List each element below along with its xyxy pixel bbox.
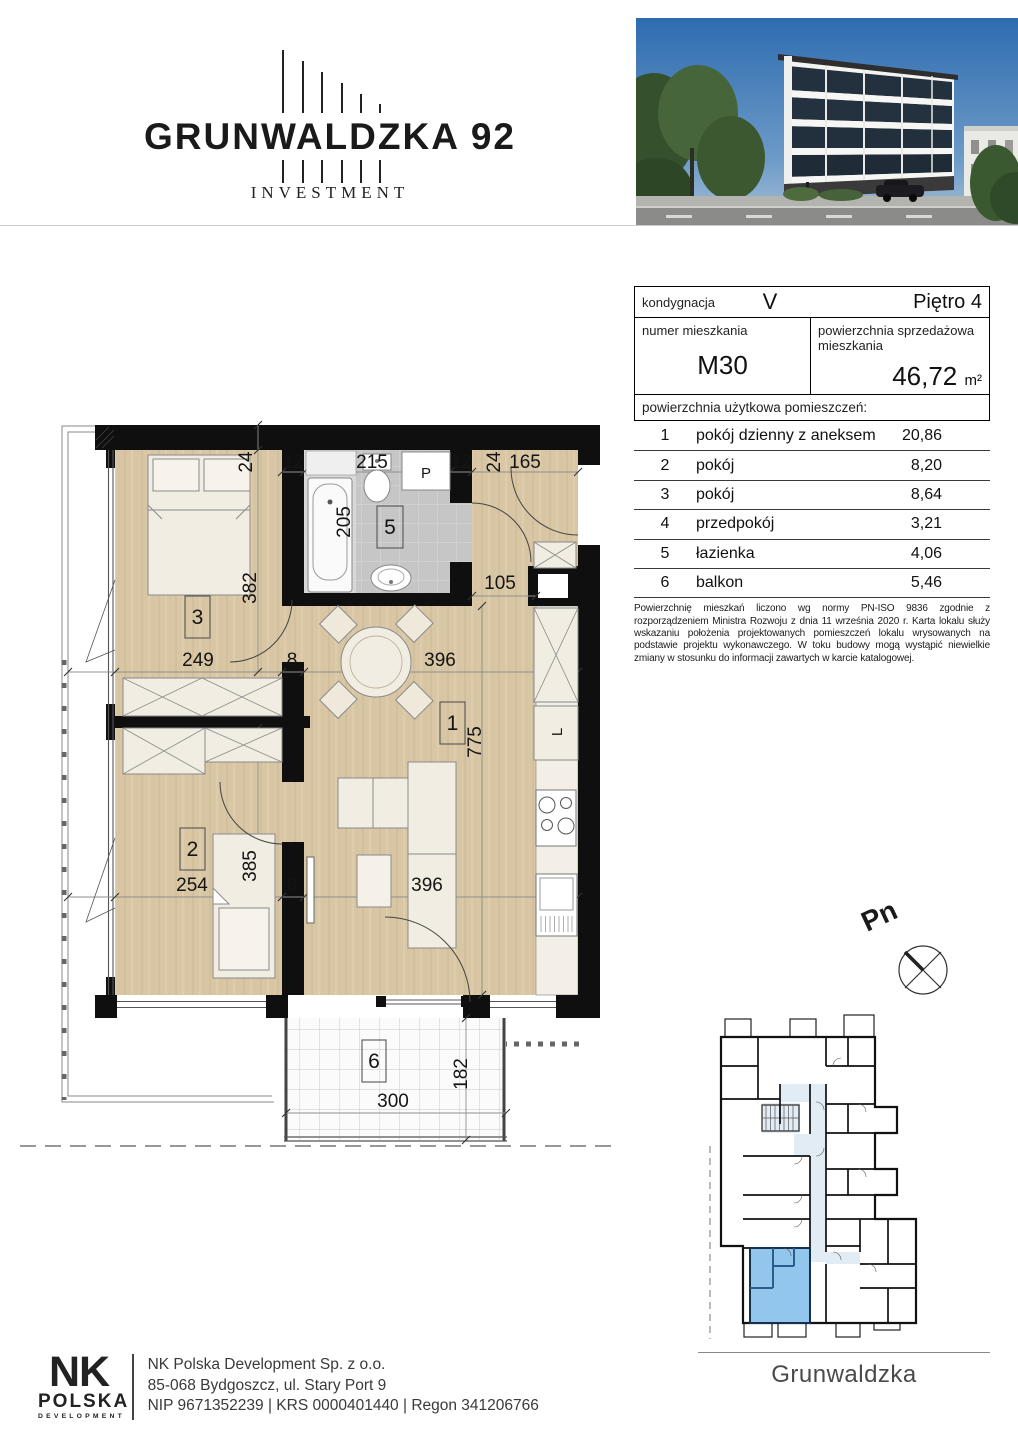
- shaft: [538, 574, 568, 598]
- logo-bar: [341, 83, 343, 113]
- entry-cabinet: [534, 542, 576, 568]
- floor-plan: 3 5 1 2 6 12 215 12 165 24 24 205 382 10…: [20, 410, 620, 1170]
- brand-wordmark: GRUNWALDZKA 92: [130, 116, 530, 158]
- dim-254: 254: [176, 875, 208, 896]
- footer-address: 85-068 Bydgoszcz, ul. Stary Port 9: [148, 1376, 539, 1397]
- nk-logo: NK POLSKA DEVELOPMENT: [38, 1352, 120, 1422]
- dim-24-right: 24: [484, 451, 505, 473]
- page: GRUNWALDZKA 92 INVESTMENT: [0, 0, 1018, 1440]
- logo-bar: [302, 61, 304, 113]
- kondygnacja-value: V: [730, 289, 810, 315]
- logo-bar: [379, 104, 381, 113]
- room-area: 4,06: [894, 545, 990, 563]
- room-label-1: 1: [447, 712, 459, 735]
- info-row-usable-header: powierzchnia użytkowa pomieszczeń:: [635, 395, 989, 420]
- dim-205: 205: [334, 506, 355, 538]
- footer-text: NK Polska Development Sp. z o.o. 85-068 …: [148, 1352, 539, 1422]
- area-unit: m²: [965, 372, 983, 389]
- room-name: pokój: [696, 457, 894, 475]
- coffee-table: [357, 855, 391, 907]
- dim-12-right: 12: [450, 452, 471, 473]
- room-number: 2: [634, 457, 696, 475]
- uzytkowa-header: powierzchnia użytkowa pomieszczeń:: [635, 400, 867, 415]
- shelf: [306, 451, 356, 475]
- dim-775: 775: [465, 726, 486, 758]
- logo-bar: [360, 94, 362, 113]
- nk-logo-polska: POLSKA: [38, 1392, 120, 1412]
- brand-logo: GRUNWALDZKA 92 INVESTMENT: [130, 40, 530, 215]
- disclaimer-text: Powierzchnię mieszkań liczono wg normy P…: [634, 603, 990, 664]
- door-sill-end: [376, 996, 386, 1007]
- street-name: Grunwaldzka: [698, 1361, 990, 1389]
- logo-bar: [302, 160, 304, 183]
- room-row: 6 balkon 5,46: [634, 569, 990, 598]
- building-render-image: [636, 18, 1018, 225]
- apartment-area: 46,72 m²: [818, 361, 982, 392]
- room-row: 1 pokój dzienny z aneksem 20,86: [634, 422, 990, 451]
- apartment-area-cell: powierzchnia sprzedażowa mieszkania 46,7…: [811, 318, 989, 394]
- powierzchnia-label: powierzchnia sprzedażowa mieszkania: [818, 323, 982, 353]
- highlighted-unit: [750, 1248, 810, 1323]
- logo-bar: [282, 50, 284, 113]
- apartment-number-cell: numer mieszkania M30: [635, 318, 811, 394]
- pietro-value: Piętro 4: [913, 291, 989, 314]
- room-list: 1 pokój dzienny z aneksem 20,86 2 pokój …: [634, 422, 990, 598]
- brand-subtitle: INVESTMENT: [130, 183, 530, 203]
- stove: [536, 790, 576, 846]
- tall-wardrobe: [534, 608, 578, 702]
- room-area: 20,86: [894, 427, 990, 445]
- room-row: 3 pokój 8,64: [634, 481, 990, 510]
- window-tilt-mark: [86, 838, 115, 922]
- room-area: 8,64: [894, 486, 990, 504]
- logo-bar: [321, 160, 323, 183]
- dim-8-top: 8: [287, 650, 298, 671]
- wardrobe: [123, 678, 282, 716]
- main-building: [778, 54, 958, 198]
- developer-footer: NK POLSKA DEVELOPMENT NK Polska Developm…: [38, 1352, 539, 1422]
- dim-300: 300: [377, 1091, 409, 1112]
- info-row-floor: kondygnacja V Piętro 4: [635, 287, 989, 318]
- footer-company: NK Polska Development Sp. z o.o.: [148, 1355, 539, 1376]
- room-label-6: 6: [368, 1050, 380, 1073]
- balcony: [284, 1018, 507, 1141]
- dim-8-bottom: 8: [287, 875, 298, 896]
- room-area: 5,46: [894, 574, 990, 592]
- fridge-label: L: [549, 728, 566, 736]
- footer-divider: [132, 1354, 134, 1420]
- logo-bar: [341, 160, 343, 183]
- window-tilt-mark: [86, 580, 115, 662]
- dim-385: 385: [240, 850, 261, 882]
- dim-396-bottom: 396: [411, 875, 443, 896]
- numer-label: numer mieszkania: [642, 323, 803, 338]
- room-label-5: 5: [384, 516, 396, 539]
- washer-label: P: [421, 465, 431, 482]
- room-row: 4 przedpokój 3,21: [634, 510, 990, 539]
- room-row: 2 pokój 8,20: [634, 451, 990, 480]
- room-name: pokój: [696, 486, 894, 504]
- logo-bar: [360, 160, 362, 183]
- room-area: 3,21: [894, 515, 990, 533]
- room-name: łazienka: [696, 545, 894, 563]
- room-label-3: 3: [192, 606, 204, 629]
- room-number: 6: [634, 574, 696, 592]
- room-row: 5 łazienka 4,06: [634, 540, 990, 569]
- dim-396-top: 396: [424, 650, 456, 671]
- street-line: [698, 1352, 990, 1353]
- street-label-block: Grunwaldzka: [698, 1352, 990, 1389]
- dim-182: 182: [451, 1058, 472, 1090]
- north-arrow: Pn: [845, 882, 1015, 1012]
- area-number: 46,72: [892, 361, 957, 391]
- room-label-2: 2: [187, 838, 199, 861]
- floor-key-plan: [698, 1006, 1016, 1339]
- tv: [307, 857, 314, 923]
- header-divider: [0, 225, 1018, 226]
- logo-bar: [282, 160, 284, 183]
- dim-165: 165: [509, 452, 541, 473]
- info-row-number-area: numer mieszkania M30 powierzchnia sprzed…: [635, 318, 989, 395]
- room-name: przedpokój: [696, 515, 894, 533]
- apartment-number: M30: [642, 350, 803, 381]
- footer-registry: NIP 9671352239 | KRS 0000401440 | Regon …: [148, 1396, 539, 1417]
- dim-382: 382: [240, 572, 261, 604]
- dim-215: 215: [356, 452, 388, 473]
- room-number: 4: [634, 515, 696, 533]
- kitchen-sink: [536, 874, 577, 936]
- dim-249: 249: [182, 650, 214, 671]
- dim-24-left: 24: [236, 451, 257, 473]
- nk-logo-development: DEVELOPMENT: [38, 1412, 120, 1422]
- apartment-info-panel: kondygnacja V Piętro 4 numer mieszkania …: [634, 286, 990, 665]
- room-name: pokój dzienny z aneksem: [696, 427, 894, 445]
- kondygnacja-label: kondygnacja: [635, 295, 715, 310]
- logo-bar: [321, 72, 323, 113]
- nk-logo-letters: NK: [38, 1352, 120, 1392]
- room-number: 5: [634, 545, 696, 563]
- room-name: balkon: [696, 574, 894, 592]
- washbasin: [371, 565, 411, 591]
- room-number: 3: [634, 486, 696, 504]
- logo-bar: [379, 160, 381, 183]
- info-table: kondygnacja V Piętro 4 numer mieszkania …: [634, 286, 990, 421]
- north-label: Pn: [856, 894, 902, 937]
- dim-105: 105: [484, 573, 516, 594]
- room-number: 1: [634, 427, 696, 445]
- dim-12-left: 12: [282, 452, 303, 473]
- room-area: 8,20: [894, 457, 990, 475]
- double-bed: [148, 455, 250, 595]
